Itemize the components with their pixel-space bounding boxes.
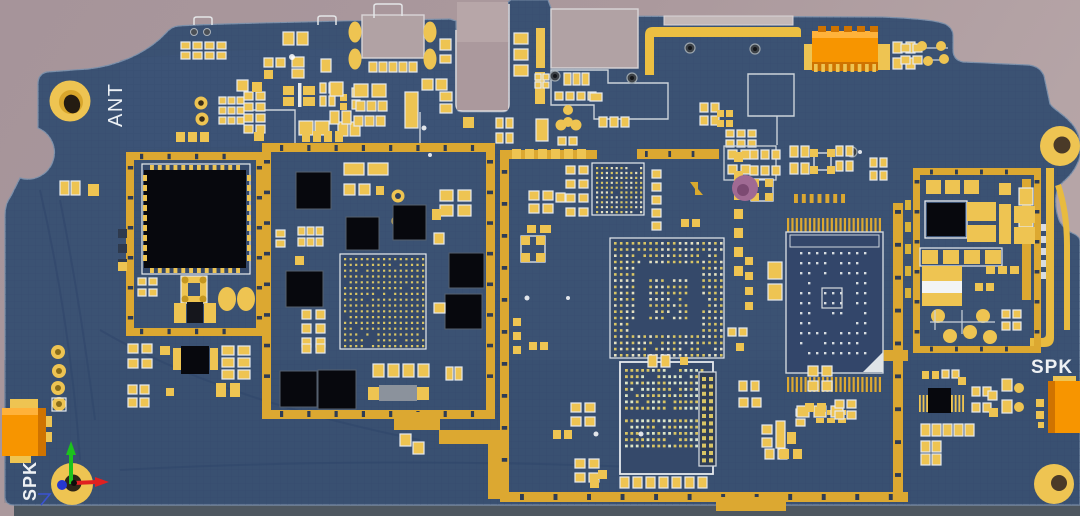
- svg-text:SPK: SPK: [20, 461, 40, 501]
- svg-text:ANT: ANT: [105, 83, 127, 128]
- svg-text:SPK: SPK: [1031, 357, 1073, 378]
